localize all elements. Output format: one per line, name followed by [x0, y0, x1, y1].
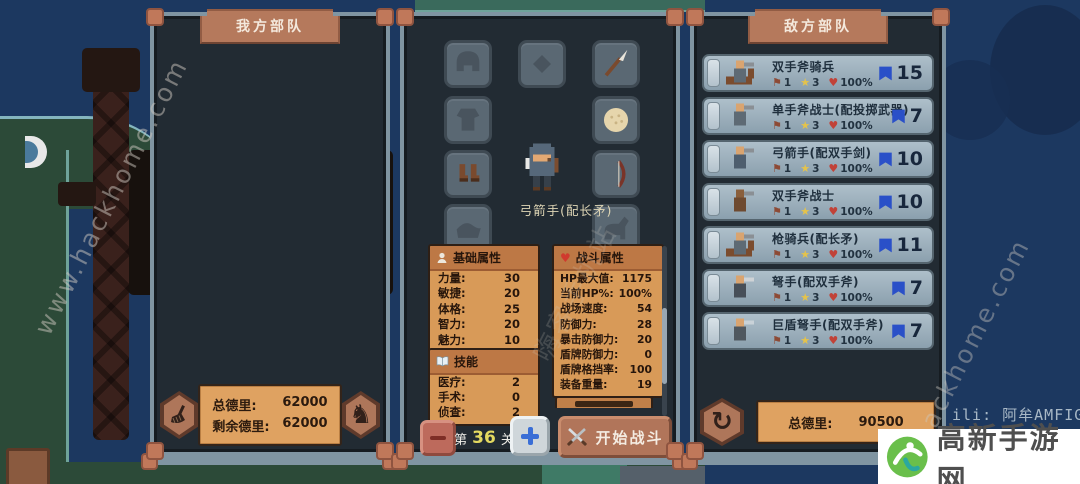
- heart-icon: ♥: [560, 251, 571, 265]
- attr-value: 100: [629, 362, 652, 377]
- attr-label: 防御力:: [560, 317, 597, 332]
- map-dock: [6, 448, 50, 484]
- refresh-enemies-button[interactable]: [700, 398, 744, 446]
- attr-row: 暴击防御力: 20: [554, 332, 662, 347]
- horse-icon: [346, 395, 376, 435]
- card-notch: [707, 145, 720, 173]
- attr-value: 2: [512, 375, 520, 390]
- horse-button[interactable]: [342, 391, 380, 439]
- ship-yardarm: [58, 182, 96, 206]
- attr-row: 防御力: 28: [554, 317, 662, 332]
- hp-value: 100%: [840, 163, 872, 175]
- attr-value: 25: [504, 302, 520, 317]
- money-row: 总德里: 62000: [212, 395, 327, 414]
- unit-name: 双手斧战士: [772, 187, 873, 204]
- card-notch: [707, 317, 720, 345]
- hp-value: 100%: [840, 249, 872, 261]
- count-value: 10: [897, 191, 923, 213]
- start-battle-label: 开始战斗: [595, 427, 663, 448]
- money-value: 62000: [282, 416, 327, 435]
- attr-label: 侦查:: [438, 405, 466, 420]
- scrollbar-thumb[interactable]: [662, 308, 667, 384]
- unit-stats: ⚑1 ★3 ♥100%: [772, 291, 873, 304]
- flag-icon: ⚑: [772, 162, 782, 175]
- enemy-troops-title: 敌方部队: [748, 9, 888, 44]
- combat-attributes-table: ♥ 战斗属性 HP最大值: 1175 当前HP%: 100% 战场速度: 54 …: [552, 244, 664, 398]
- attr-label: 魅力:: [438, 333, 466, 348]
- clear-troops-button[interactable]: [160, 391, 198, 439]
- card-notch: [707, 102, 720, 130]
- unit-count: 11: [878, 228, 923, 262]
- unit-sprite-icon: [726, 275, 756, 302]
- flag-value: 1: [784, 77, 791, 89]
- money-row: 剩余德里: 62000: [212, 416, 327, 435]
- attr-row: 当前HP%: 100%: [554, 286, 662, 301]
- flag-value: 1: [784, 120, 791, 132]
- attr-label: 暴击防御力:: [560, 332, 618, 347]
- heart-icon: ♥: [828, 119, 838, 132]
- card-notch: [707, 59, 720, 87]
- heart-icon: ♥: [828, 76, 838, 89]
- unit-name: 弓箭手(配双手剑): [772, 144, 873, 161]
- attr-label: 力量:: [438, 271, 466, 286]
- flag-icon: ⚑: [772, 334, 782, 347]
- gem-icon: [525, 47, 559, 81]
- flag-value: 1: [784, 335, 791, 347]
- round-shield-icon: [599, 103, 633, 137]
- skills-title: 技能: [454, 353, 478, 370]
- broom-icon: [164, 395, 194, 435]
- boots-icon: [451, 157, 485, 191]
- my-troops-title: 我方部队: [200, 9, 340, 44]
- saddle-icon: [451, 211, 485, 245]
- armor-slot[interactable]: [444, 96, 492, 144]
- star-value: 3: [812, 206, 819, 218]
- money-value: 62000: [282, 395, 327, 414]
- panel-bottom-rail: [144, 456, 396, 465]
- star-value: 3: [812, 77, 819, 89]
- troop-count-icon: [878, 152, 893, 167]
- clipped-table-header: [555, 396, 653, 408]
- archer-character-sprite: [522, 142, 562, 192]
- attr-value: 20: [637, 332, 652, 347]
- card-notch: [707, 188, 720, 216]
- level-increase-button[interactable]: [510, 416, 550, 456]
- attr-label: 敏捷:: [438, 286, 466, 301]
- site-logo-icon: [886, 434, 929, 480]
- count-value: 7: [910, 277, 923, 299]
- count-value: 7: [910, 320, 923, 342]
- ship-crowsnest: [82, 48, 140, 92]
- level-number: 36: [472, 428, 496, 448]
- star-icon: ★: [800, 291, 810, 304]
- refresh-icon: [704, 402, 740, 442]
- unit-count: 7: [891, 314, 923, 348]
- troop-count-icon: [891, 324, 906, 339]
- boots-slot[interactable]: [444, 150, 492, 198]
- attr-value: 54: [637, 301, 652, 316]
- minus-icon: [430, 436, 446, 440]
- helmet-icon: [451, 47, 485, 81]
- enemy-troops-panel: 敌方部队 双手斧骑兵: [690, 12, 946, 456]
- attr-value: 20: [504, 317, 520, 332]
- my-troops-panel: 我方部队 总德里: 62000 剩余德里:: [150, 12, 390, 456]
- spear-icon: [599, 47, 633, 81]
- star-icon: ★: [800, 162, 810, 175]
- weapon-slot[interactable]: [592, 40, 640, 88]
- unit-sprite-icon: [726, 103, 756, 130]
- flag-icon: ⚑: [772, 119, 782, 132]
- map-land: [542, 462, 627, 484]
- bow-slot[interactable]: [592, 150, 640, 198]
- troop-count-icon: [891, 109, 906, 124]
- unit-count: 10: [878, 185, 923, 219]
- unit-count: 10: [878, 142, 923, 176]
- game-screen: 我方部队 总德里: 62000 剩余德里:: [0, 0, 1080, 484]
- attr-value: 0: [512, 390, 520, 405]
- count-value: 15: [897, 62, 923, 84]
- star-value: 3: [812, 249, 819, 261]
- heart-icon: ♥: [828, 334, 838, 347]
- unit-count: 7: [891, 99, 923, 133]
- money-value: 90500: [858, 415, 903, 430]
- attr-label: 装备重量:: [560, 377, 608, 392]
- unit-stats: ⚑1 ★3 ♥100%: [772, 119, 909, 132]
- my-money-box: 总德里: 62000 剩余德里: 62000: [198, 384, 341, 446]
- unit-stats: ⚑1 ★3 ♥100%: [772, 205, 873, 218]
- unit-name: 枪骑兵(配长矛): [772, 230, 873, 247]
- card-notch: [707, 274, 720, 302]
- unit-stats: ⚑1 ★3 ♥100%: [772, 162, 873, 175]
- attr-row: 力量: 30: [430, 271, 538, 286]
- attr-value: 20: [504, 286, 520, 301]
- attr-row: 体格: 25: [430, 302, 538, 317]
- attr-label: 战场速度:: [560, 301, 608, 316]
- attr-label: 智力:: [438, 317, 466, 332]
- enemy-unit-card[interactable]: 枪骑兵(配长矛) ⚑1 ★3 ♥100% 11: [702, 226, 934, 264]
- scrollbar: [662, 246, 667, 416]
- troop-count-icon: [878, 195, 893, 210]
- unit-sprite-icon: [726, 189, 756, 216]
- attr-row: HP最大值: 1175: [554, 271, 662, 286]
- hp-value: 100%: [840, 292, 872, 304]
- flag-value: 1: [784, 163, 791, 175]
- crossed-swords-icon: [566, 427, 588, 447]
- attr-row: 手术: 0: [430, 390, 538, 405]
- shield-slot[interactable]: [592, 96, 640, 144]
- flag-value: 1: [784, 206, 791, 218]
- unit-sprite-icon: [726, 318, 756, 345]
- bow-icon: [599, 157, 633, 191]
- heart-icon: ♥: [828, 248, 838, 261]
- unit-stats: ⚑1 ★3 ♥100%: [772, 248, 873, 261]
- star-icon: ★: [800, 119, 810, 132]
- helmet-slot[interactable]: [444, 40, 492, 88]
- attr-row: 敏捷: 20: [430, 286, 538, 301]
- attr-value: 19: [637, 377, 652, 392]
- troop-count-icon: [878, 66, 893, 81]
- map-shore: [415, 0, 705, 12]
- count-value: 11: [897, 234, 923, 256]
- flag-value: 1: [784, 249, 791, 261]
- site-logo-plate: 高新手游网: [878, 429, 1080, 484]
- armor-icon: [451, 103, 485, 137]
- start-battle-button[interactable]: 开始战斗: [558, 416, 672, 458]
- level-prefix: 第: [454, 429, 467, 448]
- flag-icon: ⚑: [772, 76, 782, 89]
- enemy-unit-card[interactable]: 双手斧骑兵 ⚑1 ★3 ♥100% 15: [702, 54, 934, 92]
- enemy-unit-card[interactable]: 单手斧战士(配投掷武器) ⚑1 ★3 ♥100% 7: [702, 97, 934, 135]
- troop-count-icon: [878, 238, 893, 253]
- attr-label: 手术:: [438, 390, 466, 405]
- count-value: 10: [897, 148, 923, 170]
- attr-row: 战场速度: 54: [554, 301, 662, 316]
- gem-slot[interactable]: [518, 40, 566, 88]
- star-icon: ★: [800, 76, 810, 89]
- enemy-unit-card[interactable]: 巨盾弩手(配双手斧) ⚑1 ★3 ♥100% 7: [702, 312, 934, 350]
- enemy-unit-card[interactable]: 双手斧战士 ⚑1 ★3 ♥100% 10: [702, 183, 934, 221]
- level-decrease-button[interactable]: [420, 420, 456, 456]
- attr-value: 10: [504, 333, 520, 348]
- attr-row: 盾牌防御力: 0: [554, 347, 662, 362]
- attr-row: 魅力: 10: [430, 333, 538, 348]
- book-icon: [436, 356, 449, 367]
- unit-count: 15: [878, 56, 923, 90]
- money-label: 总德里:: [788, 413, 832, 432]
- money-label: 剩余德里:: [212, 416, 269, 435]
- flag-icon: ⚑: [772, 291, 782, 304]
- hp-value: 100%: [840, 120, 872, 132]
- basic-attrs-title: 基础属性: [453, 249, 501, 266]
- ship-mast: [93, 58, 129, 440]
- bust-icon: [436, 252, 448, 264]
- count-value: 7: [910, 105, 923, 127]
- attr-value: 28: [637, 317, 652, 332]
- unit-sprite-icon: [726, 232, 756, 259]
- skills-table: 技能 医疗: 2 手术: 0 侦查: 2: [428, 348, 540, 426]
- attr-label: 当前HP%:: [560, 286, 614, 301]
- troop-count-icon: [891, 281, 906, 296]
- attr-label: 体格:: [438, 302, 466, 317]
- attr-value: 100%: [619, 286, 652, 301]
- plus-icon: [521, 427, 539, 445]
- enemy-unit-card[interactable]: 弩手(配双手斧) ⚑1 ★3 ♥100% 7: [702, 269, 934, 307]
- star-icon: ★: [800, 248, 810, 261]
- basic-attributes-table: 基础属性 力量: 30 敏捷: 20 体格: 25 智力: 20: [428, 244, 540, 354]
- attr-label: 医疗:: [438, 375, 466, 390]
- unit-stats: ⚑1 ★3 ♥100%: [772, 76, 873, 89]
- star-value: 3: [812, 292, 819, 304]
- unit-name: 双手斧骑兵: [772, 58, 873, 75]
- heart-icon: ♥: [828, 162, 838, 175]
- unit-stats: ⚑1 ★3 ♥100%: [772, 334, 884, 347]
- enemy-unit-list: 双手斧骑兵 ⚑1 ★3 ♥100% 15: [702, 54, 934, 355]
- hp-value: 100%: [840, 77, 872, 89]
- hp-value: 100%: [840, 335, 872, 347]
- enemy-unit-card[interactable]: 弓箭手(配双手剑) ⚑1 ★3 ♥100% 10: [702, 140, 934, 178]
- attr-label: 盾牌格挡率:: [560, 362, 618, 377]
- unit-count: 7: [891, 271, 923, 305]
- attr-row: 智力: 20: [430, 317, 538, 332]
- level-display: 第 36 关: [460, 420, 508, 456]
- heart-icon: ♥: [828, 291, 838, 304]
- attr-row: 装备重量: 19: [554, 377, 662, 392]
- hp-value: 100%: [840, 206, 872, 218]
- attr-label: HP最大值:: [560, 271, 614, 286]
- card-notch: [707, 231, 720, 259]
- unit-sprite-icon: [726, 60, 756, 87]
- flag-icon: ⚑: [772, 205, 782, 218]
- money-label: 总德里:: [212, 395, 256, 414]
- combat-attrs-title: 战斗属性: [576, 249, 624, 266]
- attr-row: 盾牌格挡率: 100: [554, 362, 662, 377]
- attr-value: 1175: [622, 271, 652, 286]
- flag-icon: ⚑: [772, 248, 782, 261]
- attr-label: 盾牌防御力:: [560, 347, 618, 362]
- star-icon: ★: [800, 205, 810, 218]
- unit-name: 巨盾弩手(配双手斧): [772, 316, 884, 333]
- star-icon: ★: [800, 334, 810, 347]
- heart-icon: ♥: [828, 205, 838, 218]
- star-value: 3: [812, 120, 819, 132]
- flag-value: 1: [784, 292, 791, 304]
- unit-name: 弩手(配双手斧): [772, 273, 873, 290]
- unit-name: 单手斧战士(配投掷武器): [772, 101, 909, 118]
- unit-sprite-icon: [726, 146, 756, 173]
- attr-row: 医疗: 2: [430, 375, 538, 390]
- star-value: 3: [812, 163, 819, 175]
- unit-detail-panel: 弓箭手(配长矛) 基础属性 力量: 30 敏捷: 20 体格:: [400, 12, 680, 456]
- star-value: 3: [812, 335, 819, 347]
- attr-value: 30: [504, 271, 520, 286]
- attr-value: 0: [644, 347, 652, 362]
- site-logo-text: 高新手游网: [937, 415, 1080, 484]
- unit-caption: 弓箭手(配长矛): [496, 200, 636, 219]
